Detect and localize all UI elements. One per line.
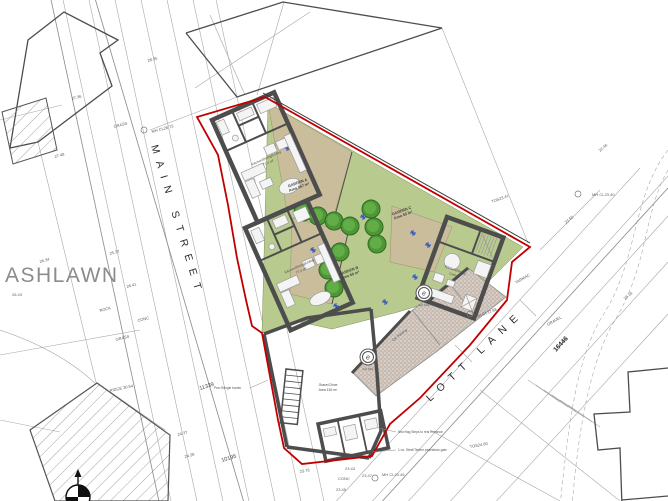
callout-flag-steps: New flag Steps to rear entrance <box>398 430 443 434</box>
svg-text:e: e <box>366 355 370 362</box>
tree <box>368 235 386 253</box>
survey-label: MH CL28.73 <box>151 123 175 134</box>
car-park-label: Car Park <box>418 303 430 307</box>
tree <box>362 200 380 218</box>
chainage-10195: 10195 <box>221 454 237 464</box>
survey-label: MH CL23.45 <box>382 472 405 477</box>
survey-label: 23.47 <box>362 473 373 478</box>
survey-label: 25.37 <box>109 248 121 256</box>
survey-label: 23.55 <box>563 214 574 225</box>
survey-label: 23.43 <box>345 466 356 471</box>
survey-label: 27.48 <box>54 151 66 159</box>
external-stairs <box>280 369 303 424</box>
survey-label: GRAVEL <box>546 314 563 327</box>
building-outline-bottom-right <box>594 368 668 501</box>
survey-label: 24.28 <box>184 451 196 459</box>
survey-label: TARMAC <box>514 272 531 285</box>
survey-label: TOS23.41 <box>491 193 511 204</box>
car-park-label: Car Park <box>362 367 374 371</box>
site-plan-drawing: Kitchen/Dining/Living 77.4 m² Kitchen/Di… <box>0 0 668 501</box>
tree <box>325 212 343 230</box>
tree <box>365 218 383 236</box>
callout-pea-shingle: Pea Shingle border <box>214 386 242 390</box>
survey-label: RIDGE 30.54 <box>109 383 134 393</box>
survey-label: 23.78 <box>299 467 310 474</box>
survey-label: TOS24.60 <box>469 441 489 449</box>
survey-label: 26.41 <box>126 281 138 289</box>
survey-label: 26.34 <box>39 256 51 264</box>
chainage-16446: 16446 <box>552 335 570 353</box>
hatched-building-bottom-left <box>30 383 170 501</box>
survey-label: 23.45 <box>336 487 347 492</box>
yard-area: Area 152 m² <box>319 388 339 392</box>
survey-label: ROCK <box>99 305 112 313</box>
callout-pedestrian-gate: 1 no. Steel/Timber pedestrian gate <box>398 448 447 452</box>
chainage-11339: 11339 <box>199 382 215 392</box>
survey-label: CONC <box>137 315 150 323</box>
parking-space-e-symbol: e <box>416 285 432 301</box>
yard-label: Gravel Drive <box>319 383 338 387</box>
survey-label: GRASS <box>115 333 130 342</box>
tree <box>341 217 359 235</box>
svg-text:e: e <box>422 291 426 298</box>
ashlawn-label: ASHLAWN <box>5 264 119 287</box>
site-plan-page: Kitchen/Dining/Living 77.4 m² Kitchen/Di… <box>0 0 668 501</box>
building-outline-top-center <box>186 2 442 97</box>
survey-label: MH CL23.40 <box>592 192 615 197</box>
survey-label: 28.35 <box>147 55 159 63</box>
survey-label: 27.36 <box>71 93 83 101</box>
survey-label: 23.18 <box>622 290 633 301</box>
survey-label: 22.46 <box>597 142 608 153</box>
survey-label: CONC <box>338 476 350 481</box>
parking-space-e-symbol: e <box>360 349 376 365</box>
survey-label: 26.43 <box>12 292 23 297</box>
